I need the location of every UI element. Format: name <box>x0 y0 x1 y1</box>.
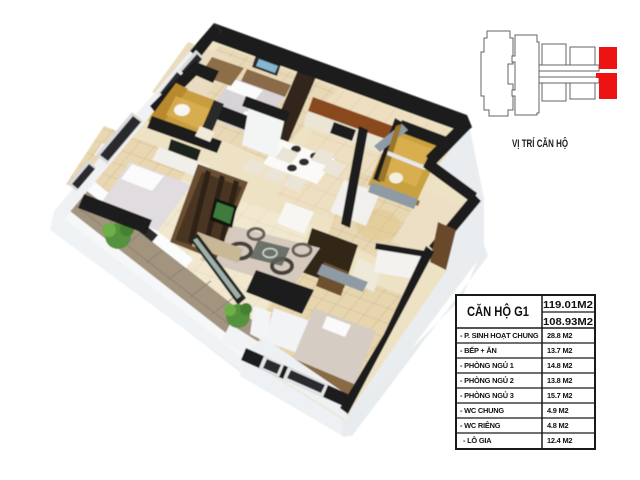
svg-text:13.7 M2: 13.7 M2 <box>547 346 572 355</box>
svg-text:15.7 M2: 15.7 M2 <box>547 391 572 400</box>
svg-text:13.8 M2: 13.8 M2 <box>547 376 572 385</box>
svg-text:14.8 M2: 14.8 M2 <box>547 361 572 370</box>
svg-text:CĂN HỘ G1: CĂN HỘ G1 <box>467 302 529 319</box>
svg-text:- LÔ GIA: - LÔ GIA <box>463 436 492 445</box>
svg-text:VỊ TRÍ CĂN HỘ: VỊ TRÍ CĂN HỘ <box>512 137 568 150</box>
svg-text:108.93M2: 108.93M2 <box>543 316 593 328</box>
svg-text:28.8 M2: 28.8 M2 <box>547 331 572 340</box>
svg-text:- WC CHUNG: - WC CHUNG <box>460 406 504 415</box>
svg-text:- BẾP + ĂN: - BẾP + ĂN <box>460 345 497 355</box>
svg-text:4.8 M2: 4.8 M2 <box>547 421 568 430</box>
svg-text:119.01M2: 119.01M2 <box>543 299 593 311</box>
svg-text:- PHÒNG NGỦ 2: - PHÒNG NGỦ 2 <box>460 376 514 385</box>
svg-text:- PHÒNG NGỦ 3: - PHÒNG NGỦ 3 <box>460 391 514 400</box>
svg-text:12.4 M2: 12.4 M2 <box>547 436 572 445</box>
svg-text:- P. SINH HOẠT CHUNG: - P. SINH HOẠT CHUNG <box>460 331 539 340</box>
svg-text:- PHÒNG NGỦ 1: - PHÒNG NGỦ 1 <box>460 361 514 370</box>
svg-text:- WC RIÊNG: - WC RIÊNG <box>460 421 501 430</box>
svg-text:4.9 M2: 4.9 M2 <box>547 406 568 415</box>
